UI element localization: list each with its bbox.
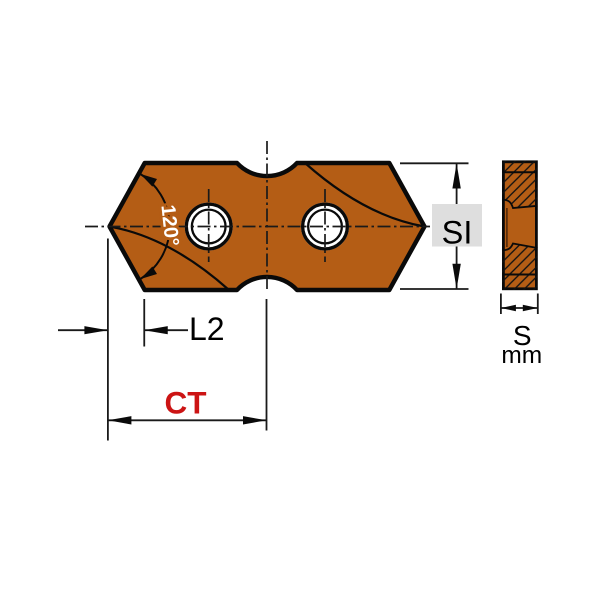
svg-text:L2: L2 <box>189 311 225 347</box>
svg-text:mm: mm <box>501 342 542 369</box>
svg-text:SI: SI <box>442 215 473 251</box>
svg-text:CT: CT <box>165 384 207 420</box>
svg-text:120°: 120° <box>156 204 182 247</box>
